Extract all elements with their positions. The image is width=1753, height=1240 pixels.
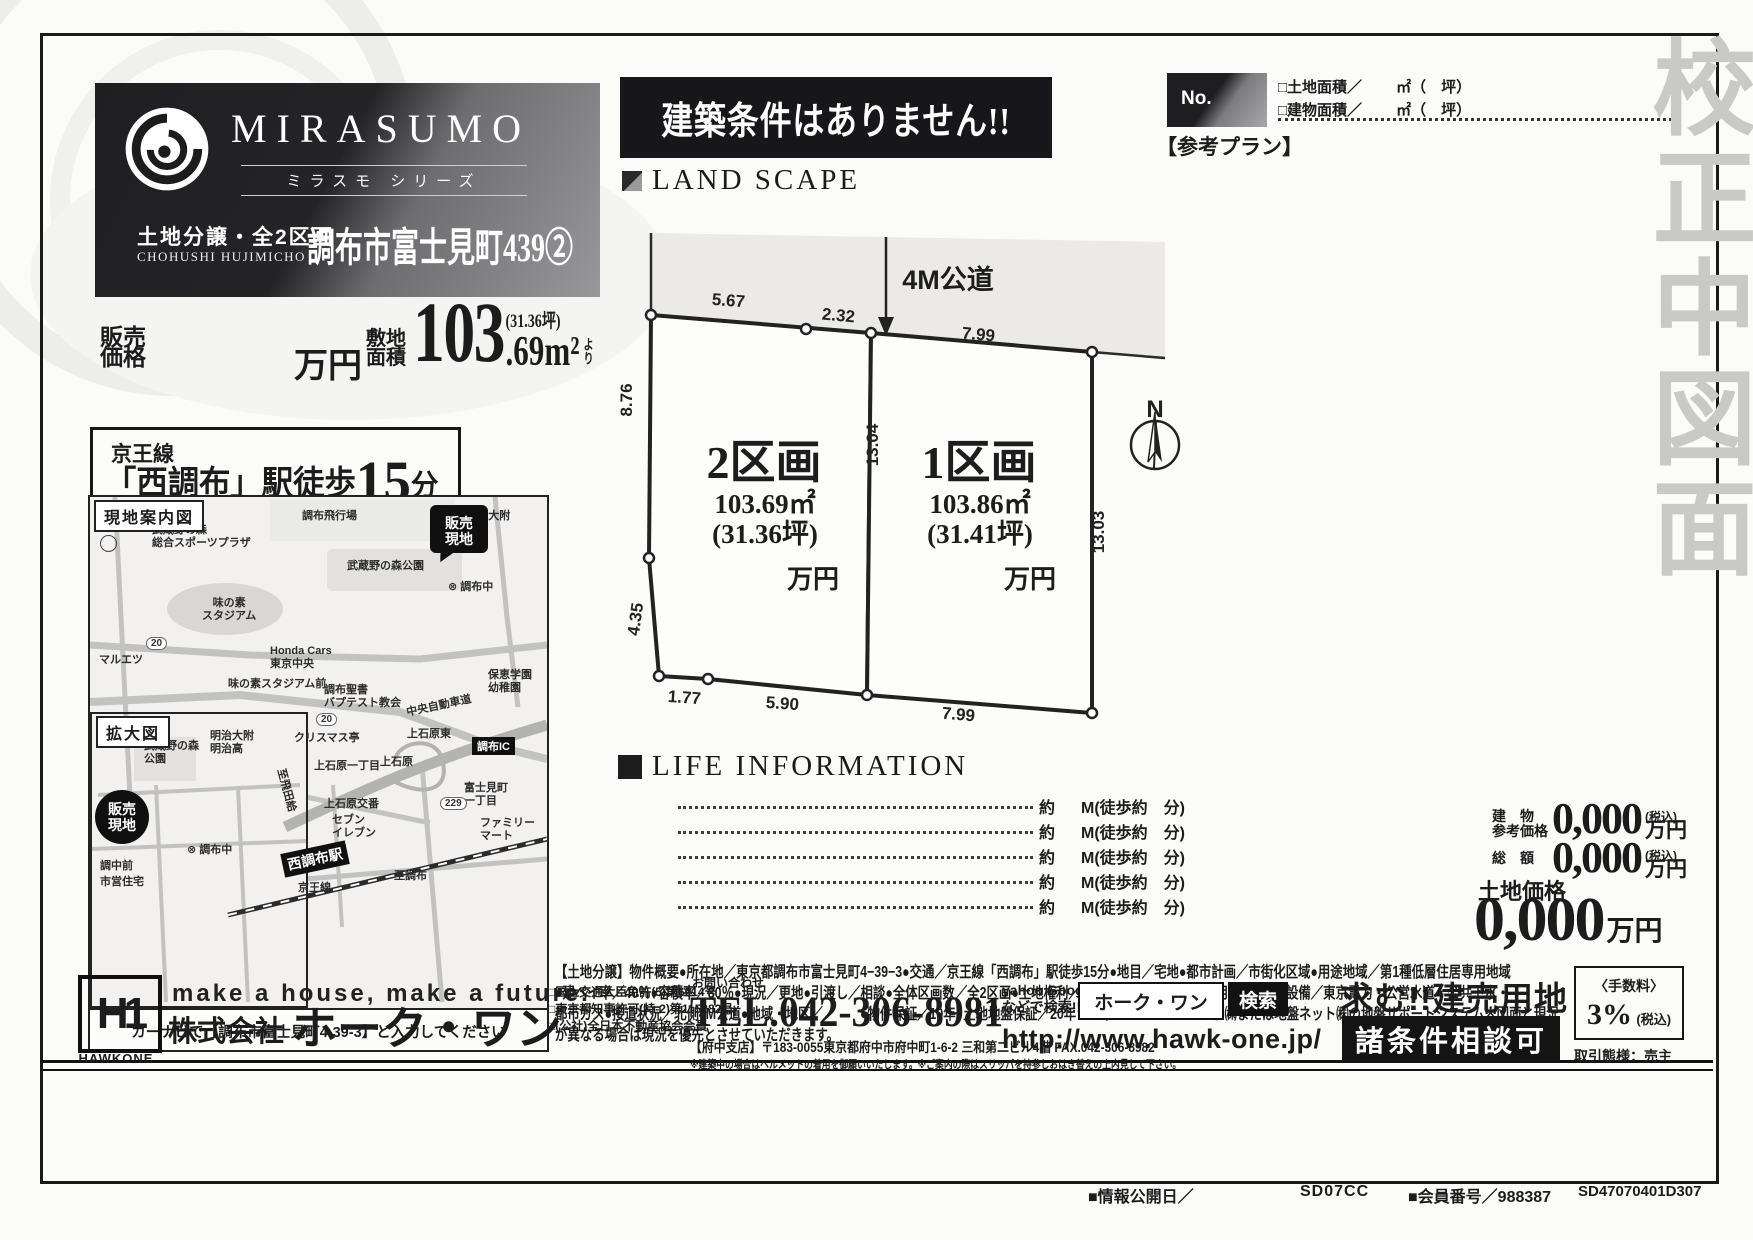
life-approx: 約 xyxy=(1039,844,1055,868)
lot1-price-unit: 万円 xyxy=(1004,565,1056,594)
area-map: 現地案内図 N 販売 現地 調布飛行場 武蔵野の森 総合スポーツプラザ ⊗ 明治… xyxy=(88,495,549,1052)
land-price-row: 0,000 万円 xyxy=(1474,892,1663,948)
life-row: 約 M(徒歩約 分) xyxy=(678,896,1185,916)
map-label: Honda Cars 東京中央 xyxy=(270,645,332,670)
code-sd07cc: SD07CC xyxy=(1300,1183,1369,1201)
plan-no-box: No. xyxy=(1167,73,1267,127)
map-label: 味の素スタジアム前 xyxy=(228,678,326,691)
land-plot-diagram: 4M公道 5.67 2.32 7.99 8.76 4.35 1.77 5.90 … xyxy=(570,195,1195,740)
route-badge: 229 xyxy=(440,797,467,810)
fee-box: 〈手数料〉 3% (税込) xyxy=(1574,966,1684,1040)
sale-price-label: 販売 価格 xyxy=(100,328,146,368)
sale-site-circle: 販売 現地 xyxy=(95,790,149,844)
negotiable-text: 諸条件相談可 xyxy=(1355,1018,1547,1060)
dotted-leader xyxy=(678,831,1033,834)
no-building-condition-banner: 建築条件はありません!! xyxy=(620,77,1052,158)
life-unit: M(徒歩約 分) xyxy=(1081,819,1185,843)
info-open-date: ■情報公開日／ xyxy=(1088,1183,1194,1207)
company-prefix: 株式会社 xyxy=(168,1012,284,1052)
map-label: 上石原交番 xyxy=(324,798,379,811)
lot1-name: 1区画 xyxy=(922,437,1037,488)
sale-type: 土地分譲・全2区画 xyxy=(137,221,335,251)
company-name: 株式会社 ホーク・ワン xyxy=(168,1006,561,1052)
lot2-price-unit: 万円 xyxy=(787,565,839,594)
life-square-icon xyxy=(618,755,642,779)
map-label: 京王線 xyxy=(298,882,331,895)
dim-top-2: 2.32 xyxy=(821,305,856,327)
property-title: 調布市富士見町439② xyxy=(307,215,573,273)
plan-no-label: No. xyxy=(1181,88,1212,110)
dotted-leader xyxy=(678,856,1033,859)
dim-middle: 13.04 xyxy=(863,423,882,466)
lot2-name: 2区画 xyxy=(707,437,822,488)
lot2-tsubo: (31.36坪) xyxy=(712,519,818,549)
dim-top-3: 7.99 xyxy=(961,324,996,346)
company-main: ホーク・ワン xyxy=(292,1006,561,1052)
dim-left-1: 8.76 xyxy=(617,383,636,416)
land-price-unit: 万円 xyxy=(1607,914,1663,948)
fee-tax: (税込) xyxy=(1636,1012,1671,1027)
man-unit: 万円 xyxy=(1645,858,1687,881)
life-row: 約 M(徒歩約 分) xyxy=(678,796,1185,816)
mirasumo-logo-icon xyxy=(123,105,211,198)
banner-text: 建築条件はありません!! xyxy=(661,90,1011,145)
land-area-row: □土地面積／ ㎡（ 坪） xyxy=(1278,76,1471,97)
map-label: 調布飛行場 xyxy=(302,510,357,523)
land-wanted: 求む!!建売用地 xyxy=(1340,972,1568,1020)
negotiable-banner: 諸条件相談可 xyxy=(1342,1016,1560,1062)
romaji: CHOHUSHI HUJIMICHO xyxy=(137,249,306,265)
life-row: 約 M(徒歩約 分) xyxy=(678,846,1185,866)
map-label: 上石原東 xyxy=(407,728,451,741)
life-row: 約 M(徒歩約 分) xyxy=(678,821,1185,841)
map-label: ファミリー マート xyxy=(480,817,535,842)
life-unit: M(徒歩約 分) xyxy=(1081,869,1185,893)
search-input: ホーク・ワン xyxy=(1078,982,1224,1020)
map-label: 富士見町 一丁目 xyxy=(464,782,508,807)
map-label: ⊗ 調布中 xyxy=(448,581,493,594)
map-label: クリスマス亭 xyxy=(294,732,360,745)
total-price-value: 0,000 xyxy=(1552,838,1641,878)
road-label: 4M公道 xyxy=(902,264,994,295)
lot2-area: 103.69㎡ xyxy=(714,488,815,519)
route-badge: 20 xyxy=(146,637,167,650)
land-area-label: □土地面積／ xyxy=(1278,76,1362,97)
life-approx: 約 xyxy=(1039,794,1055,818)
total-price-label: 総 額 xyxy=(1492,848,1552,868)
bldg-area-unit: ㎡（ 坪） xyxy=(1396,99,1471,120)
bldg-area-label: □建物面積／ xyxy=(1278,99,1362,120)
life-unit: M(徒歩約 分) xyxy=(1081,894,1185,918)
dim-bottom-2: 5.90 xyxy=(765,693,799,714)
dotted-leader xyxy=(678,906,1033,909)
life-heading: LIFE INFORMATION xyxy=(618,750,968,783)
flyer-page: 校正中図面 MIRASUMO ミラスモ シリーズ 土地分譲・全2区画 CHOHU… xyxy=(0,0,1753,1240)
hawk-one-logo: H1 xyxy=(78,975,162,1053)
map-title: 現地案内図 xyxy=(94,500,204,532)
life-title: LIFE INFORMATION xyxy=(652,750,968,783)
search-button-label: 検索 xyxy=(1239,986,1277,1013)
landscape-square-icon xyxy=(622,171,642,191)
site-area-value: 103 (31.36坪) .69m² より xyxy=(413,293,594,371)
phone-number: TEL.042-306-8981 xyxy=(690,988,1003,1037)
dim-bottom-3: 7.99 xyxy=(941,704,976,726)
deal-type: 取引態様：売主 xyxy=(1574,1046,1672,1066)
map-label: 武蔵野の森公園 xyxy=(347,560,424,573)
compass-icon: N xyxy=(1131,396,1179,469)
visit-note: ※建築中の場合はヘルメットの着用を御願いいたします。※ご案内の際はスリッパを持参… xyxy=(690,1056,1181,1072)
total-price-row: 総 額 0,000 (税込) 万円 xyxy=(1492,838,1687,878)
lot1-tsubo: (31.41坪) xyxy=(927,519,1033,549)
dotted-leader xyxy=(678,881,1033,884)
member-number: ■会員番号／988387 xyxy=(1408,1183,1551,1207)
life-approx: 約 xyxy=(1039,894,1055,918)
price-unit: 万円 xyxy=(294,338,362,387)
map-label: セブン イレブン xyxy=(332,814,376,839)
proof-watermark: 校正中図面 xyxy=(1642,34,1746,584)
map-label: 上石原 xyxy=(380,756,413,769)
code-id: SD47070401D307 xyxy=(1578,1183,1701,1200)
brand-series: ミラスモ シリーズ xyxy=(241,165,527,196)
map-label: 至調布 xyxy=(394,870,427,883)
landscape-title: LAND SCAPE xyxy=(652,164,860,197)
search-button: 検索 xyxy=(1228,982,1288,1016)
dim-top-1: 5.67 xyxy=(711,290,745,312)
search-input-value: ホーク・ワン xyxy=(1094,988,1208,1015)
brand-name: MIRASUMO xyxy=(231,105,531,152)
life-approx: 約 xyxy=(1039,869,1055,893)
area-dec: .69m² xyxy=(506,333,580,371)
dotted-leader xyxy=(678,806,1033,809)
map-label: マルエツ xyxy=(99,654,143,667)
life-approx: 約 xyxy=(1039,819,1055,843)
land-price-value: 0,000 xyxy=(1474,892,1604,948)
route-badge: 20 xyxy=(316,713,337,726)
interchange-label: 調布IC xyxy=(472,737,515,755)
map-label: ⊗ 調布中 xyxy=(187,844,232,857)
map-label: 味の素 スタジアム xyxy=(202,597,256,622)
map-label: 明治大附 明治高 xyxy=(210,730,254,755)
dim-right: 13.03 xyxy=(1089,511,1108,554)
building-price-label: 建 物参考価格 xyxy=(1492,794,1552,839)
dim-bottom-1: 1.77 xyxy=(667,687,701,708)
website-url: http://www.hawk-one.jp/ xyxy=(1002,1024,1321,1055)
life-unit: M(徒歩約 分) xyxy=(1081,844,1185,868)
hawk-one-logo-mark: H1 xyxy=(97,989,143,1039)
reference-plan-label: 【参考プラン】 xyxy=(1156,131,1303,161)
lot1-area: 103.86㎡ xyxy=(929,488,1030,519)
land-area-unit: ㎡（ 坪） xyxy=(1396,76,1471,97)
fee-value: 3% xyxy=(1587,998,1632,1031)
life-row: 約 M(徒歩約 分) xyxy=(678,871,1185,891)
dim-left-2: 4.35 xyxy=(624,602,647,637)
brand-header: MIRASUMO ミラスモ シリーズ 土地分譲・全2区画 CHOHUSHI HU… xyxy=(95,83,600,297)
fee-label: 〈手数料〉 xyxy=(1576,976,1682,996)
area-big: 103 xyxy=(413,293,504,371)
site-area-label: 敷地 面積 xyxy=(366,330,406,368)
map-label: 保恵学園 幼稚園 xyxy=(488,669,532,694)
map-label: 調中前 xyxy=(100,860,133,873)
life-unit: M(徒歩約 分) xyxy=(1081,794,1185,818)
landscape-heading: LAND SCAPE xyxy=(622,164,860,197)
plan-dotted-line xyxy=(1278,118,1672,121)
hawk-one-logo-text: HAWKONE xyxy=(70,1051,162,1066)
zoom-map-title: 拡大図 xyxy=(96,716,170,748)
map-label: 上石原一丁目 xyxy=(314,760,380,773)
bldg-area-row: □建物面積／ ㎡（ 坪） xyxy=(1278,99,1471,120)
map-label: 調布聖書 バプテスト教会 xyxy=(324,684,401,709)
map-label: 市営住宅 xyxy=(100,876,144,889)
